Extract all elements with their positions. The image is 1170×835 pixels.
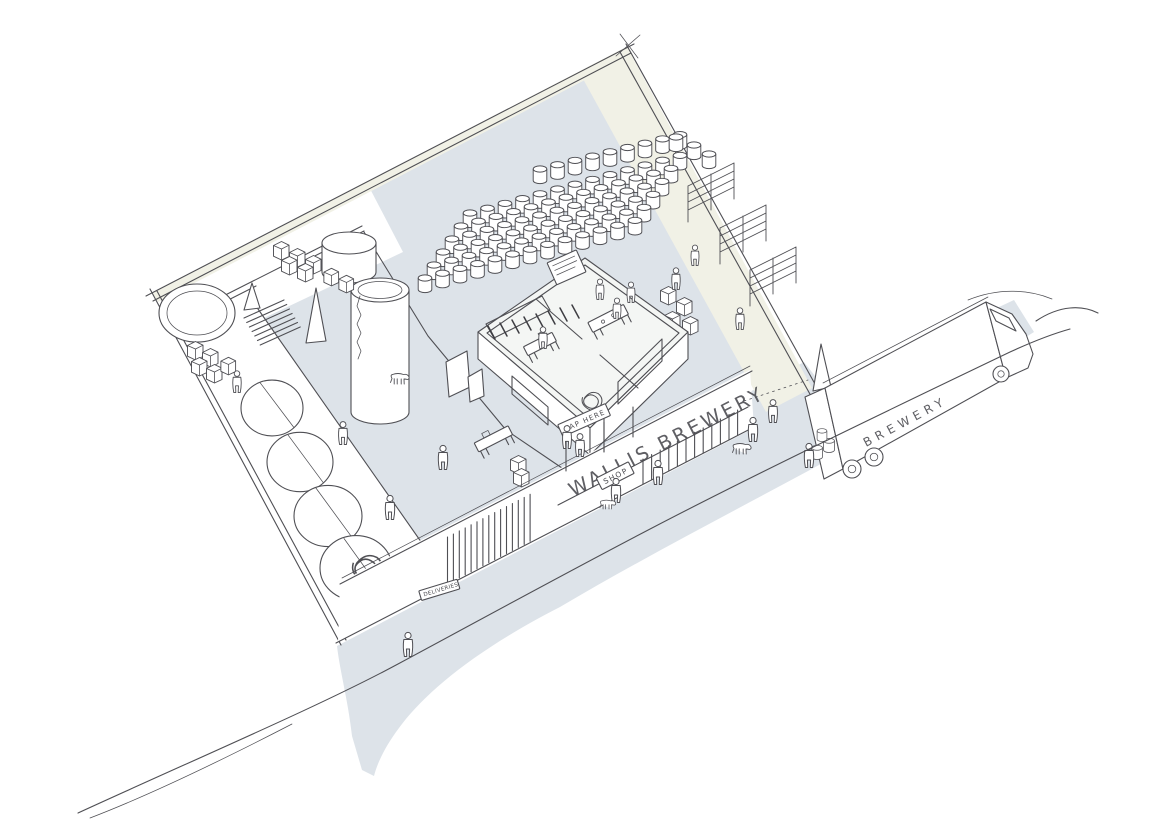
mash-tun-rim bbox=[159, 284, 235, 342]
crate bbox=[207, 365, 223, 384]
keg bbox=[558, 237, 572, 255]
truck-wheel-rear-2 bbox=[865, 448, 883, 466]
keg bbox=[576, 232, 590, 250]
truck-box-side bbox=[825, 302, 1006, 469]
truck-wheel-front bbox=[993, 366, 1009, 382]
keg bbox=[621, 144, 635, 162]
keg bbox=[586, 153, 600, 171]
crate bbox=[221, 357, 236, 375]
crate bbox=[324, 268, 339, 286]
truck-wheel-rear-1 bbox=[843, 460, 861, 478]
keg bbox=[702, 151, 716, 169]
keg bbox=[817, 429, 827, 442]
keg bbox=[436, 270, 450, 288]
kerb-line-secondary bbox=[90, 724, 292, 818]
road-curve-right-2 bbox=[968, 291, 1052, 300]
keg bbox=[471, 261, 485, 279]
keg bbox=[568, 157, 582, 175]
keg bbox=[687, 142, 701, 160]
silo-large-body bbox=[351, 290, 409, 424]
keg bbox=[611, 222, 625, 240]
crate bbox=[339, 275, 354, 293]
mash-tun bbox=[159, 284, 235, 342]
keg bbox=[541, 241, 555, 259]
crate bbox=[298, 264, 314, 283]
silo-small-top bbox=[322, 232, 376, 254]
crate bbox=[514, 469, 530, 488]
sketch-canvas: WALLIS BREWERY TAP HERE SHOP DELIVERIES bbox=[0, 0, 1170, 835]
keg bbox=[506, 251, 520, 269]
crate bbox=[192, 358, 208, 377]
keg bbox=[628, 217, 642, 235]
keg bbox=[551, 162, 565, 180]
crate bbox=[188, 342, 204, 361]
keg bbox=[593, 227, 607, 245]
gate-post bbox=[813, 344, 831, 391]
keg bbox=[488, 256, 502, 274]
keg bbox=[533, 166, 547, 184]
crate bbox=[282, 257, 298, 276]
crate bbox=[274, 242, 290, 261]
crate bbox=[677, 298, 693, 317]
keg bbox=[669, 134, 683, 152]
keg bbox=[418, 275, 432, 293]
keg bbox=[603, 149, 617, 167]
keg bbox=[523, 246, 537, 264]
road-curve-right bbox=[1036, 308, 1098, 321]
keg bbox=[656, 136, 670, 154]
brewery-axonometric-sketch: WALLIS BREWERY TAP HERE SHOP DELIVERIES bbox=[0, 0, 1170, 835]
keg bbox=[453, 265, 467, 283]
keg bbox=[638, 140, 652, 158]
